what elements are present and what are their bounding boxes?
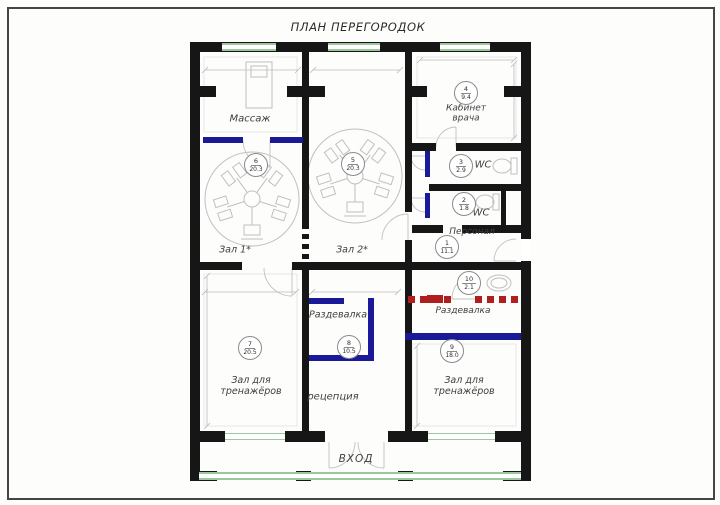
room-label-gym-left: Зал для тренажёров [220,376,281,398]
room-label-hall1: Зал 1* [219,246,251,257]
room-label-staff: Персонал [449,227,495,237]
room-label-doctor-line2: врача [446,114,486,124]
door-opening [521,239,531,261]
wall-pier [199,86,216,97]
facade-glazing [199,472,521,480]
wall [302,262,309,442]
basin-icon [487,275,511,291]
entrance-label: ВХОД [339,453,374,465]
new-partition [368,298,374,361]
drawing-sheet: ПЛАН ПЕРЕГОРОДОК [0,0,720,505]
new-partition [405,333,521,340]
red-partition-dashed [408,296,454,303]
toilet-icon [493,158,517,174]
wall [405,240,412,442]
wall [405,52,412,212]
new-partition [425,151,430,177]
wall-pier [504,86,521,97]
room-label-hall2: Зал 2* [336,246,368,257]
window-glazing [225,433,285,440]
wall-pier [388,431,428,442]
room-label-reception: рецепция [307,391,358,403]
wall-pier [495,431,521,442]
wall [412,143,436,151]
room-label-dressing-center: Раздевалка [309,311,367,322]
red-partition-dashed [475,296,521,303]
room-badge-gym-left: 720.5 [238,336,262,360]
new-partition [425,193,430,218]
new-partition [203,137,243,143]
room-label-wc-top: WC [475,159,492,171]
new-partition [270,137,303,143]
room-label-doctor-line1: Кабинет [446,104,486,114]
window-glazing [222,43,276,51]
wall [501,191,506,225]
window-glazing [428,433,495,440]
window-glazing [328,43,380,51]
wall-pier [199,431,225,442]
room-label-wc-bottom: WC [473,207,490,219]
wall-pier [285,431,325,442]
wall [199,262,242,270]
wall [302,52,309,224]
wall-hatched-section [302,224,309,262]
room-label-gym-right-line2: тренажёров [433,387,494,398]
room-badge-hall1: 620.3 [244,153,268,177]
window-glazing [440,43,490,51]
floor-plan: Массаж Зал 1* Зал 2* Кабинет врача WC WC… [0,0,720,505]
room-badge-shower: 102.1 [457,271,481,295]
wall [429,184,521,191]
gym-equipment-icon [308,129,402,223]
wall [412,225,443,233]
room-badge-staff: 111.1 [435,235,459,259]
wall [456,143,521,151]
room-badge-doctor: 49.4 [454,81,478,105]
room-label-doctor: Кабинет врача [446,104,486,125]
new-partition [309,298,344,304]
room-badge-hall2: 520.3 [341,152,365,176]
room-badge-wc-top: 32.9 [449,154,473,178]
massage-table-icon [246,62,272,108]
room-badge-wc-bottom: 21.8 [452,192,476,216]
room-badge-dressing-center: 810.5 [337,335,361,359]
room-label-dressing-right: Раздевалка [435,306,490,316]
room-label-massage: Массаж [230,113,271,125]
wall [292,262,531,270]
room-label-gym-right: Зал для тренажёров [433,376,494,398]
room-label-gym-left-line2: тренажёров [220,387,281,398]
room-badge-gym-right: 918.0 [440,339,464,363]
